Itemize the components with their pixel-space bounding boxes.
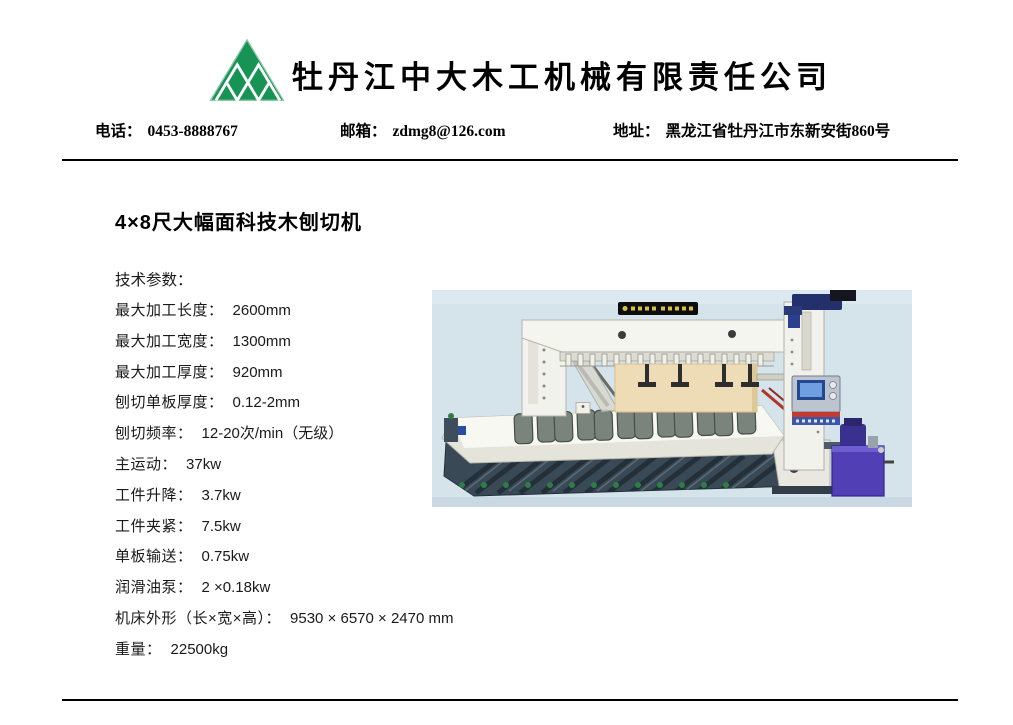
spec-value: 22500kg [171,641,229,658]
spec-row: 机床外形（长×宽×高）：9530 × 6570 × 2470 mm [115,604,585,635]
email-value: zdmg8@126.com [393,123,506,140]
spec-label: 最大加工厚度： [115,364,224,381]
spec-value: 12-20次/min（无级） [202,425,344,442]
spec-value: 9530 × 6570 × 2470 mm [290,610,453,627]
spec-value: 37kw [186,456,221,473]
specs-heading: 技术参数： [115,268,193,290]
spec-label: 重量： [115,641,162,658]
machine-illustration [432,290,912,507]
top-divider [62,159,958,161]
spec-label: 主运动： [115,456,177,473]
email-label: 邮箱： [340,123,387,140]
company-name: 牡丹江中大木工机械有限责任公司 [292,52,772,97]
phone-label: 电话： [95,123,142,140]
spec-label: 润滑油泵： [115,579,193,596]
product-datasheet-page: 牡丹江中大木工机械有限责任公司 电话：0453-8888767 邮箱：zdmg8… [0,0,1013,725]
spec-row: 单板输送：0.75kw [115,542,585,573]
spec-label: 单板输送： [115,548,193,565]
product-title: 4×8尺大幅面科技木刨切机 [115,206,362,235]
spec-value: 1300mm [233,333,291,350]
email-item: 邮箱：zdmg8@126.com [340,119,506,141]
phone-item: 电话：0453-8888767 [95,119,238,141]
spec-value: 3.7kw [202,487,241,504]
phone-value: 0453-8888767 [148,123,238,140]
spec-value: 2600mm [233,302,291,319]
spec-label: 工件夹紧： [115,518,193,535]
spec-value: 0.75kw [202,548,250,565]
spec-label: 最大加工宽度： [115,333,224,350]
address-label: 地址： [613,123,660,140]
spec-label: 最大加工长度： [115,302,224,319]
company-logo-icon [207,36,287,106]
bottom-divider [62,699,958,701]
address-item: 地址：黑龙江省牡丹江市东新安街860号 [613,119,890,141]
address-value: 黑龙江省牡丹江市东新安街860号 [666,123,891,140]
spec-row: 工件夹紧：7.5kw [115,512,585,543]
machine-photo [432,290,912,507]
spec-row: 润滑油泵：2 ×0.18kw [115,573,585,604]
spec-label: 工件升降： [115,487,193,504]
spec-value: 920mm [233,364,283,381]
spec-value: 7.5kw [202,518,241,535]
spec-label: 机床外形（长×宽×高）： [115,610,281,627]
contact-row: 电话：0453-8888767 邮箱：zdmg8@126.com 地址：黑龙江省… [0,119,1013,141]
spec-value: 0.12-2mm [233,394,301,411]
spec-value: 2 ×0.18kw [202,579,271,596]
spec-label: 刨切单板厚度： [115,394,224,411]
spec-label: 刨切频率： [115,425,193,442]
spec-row: 重量：22500kg [115,635,585,666]
